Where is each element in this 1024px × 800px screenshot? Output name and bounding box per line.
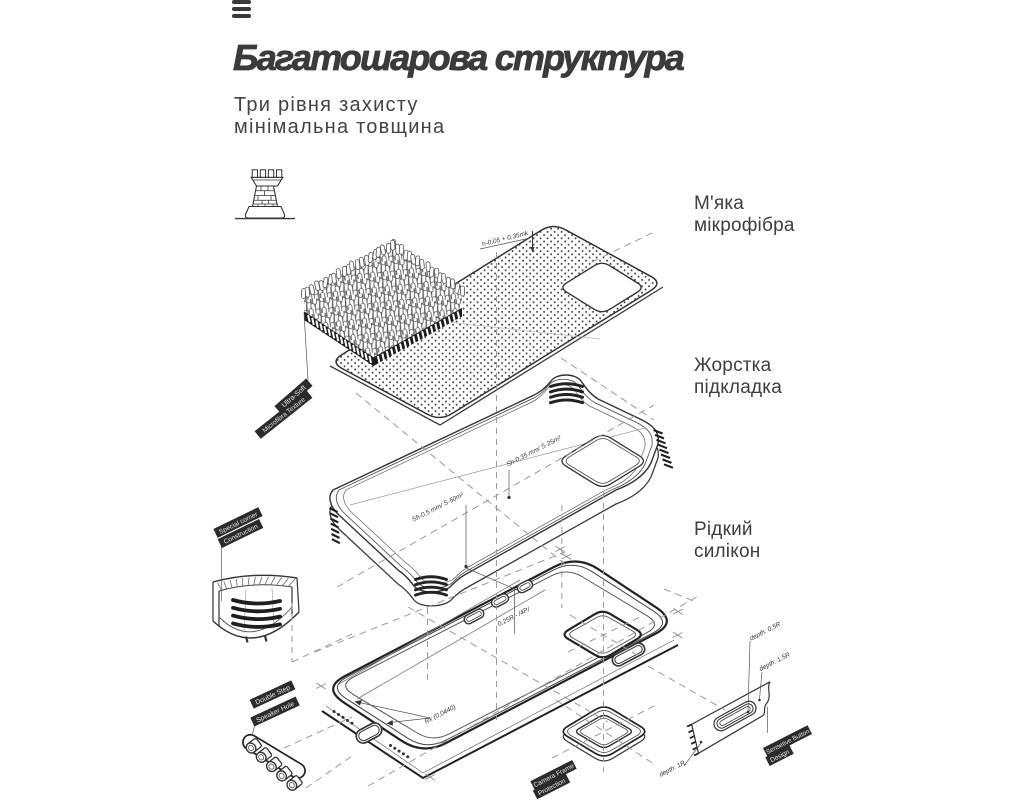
svg-text:depth: 1,5R: depth: 1,5R: [758, 651, 791, 673]
svg-text:depth: 0,5R: depth: 0,5R: [749, 621, 782, 643]
svg-text:depth: 1R: depth: 1R: [658, 760, 687, 779]
